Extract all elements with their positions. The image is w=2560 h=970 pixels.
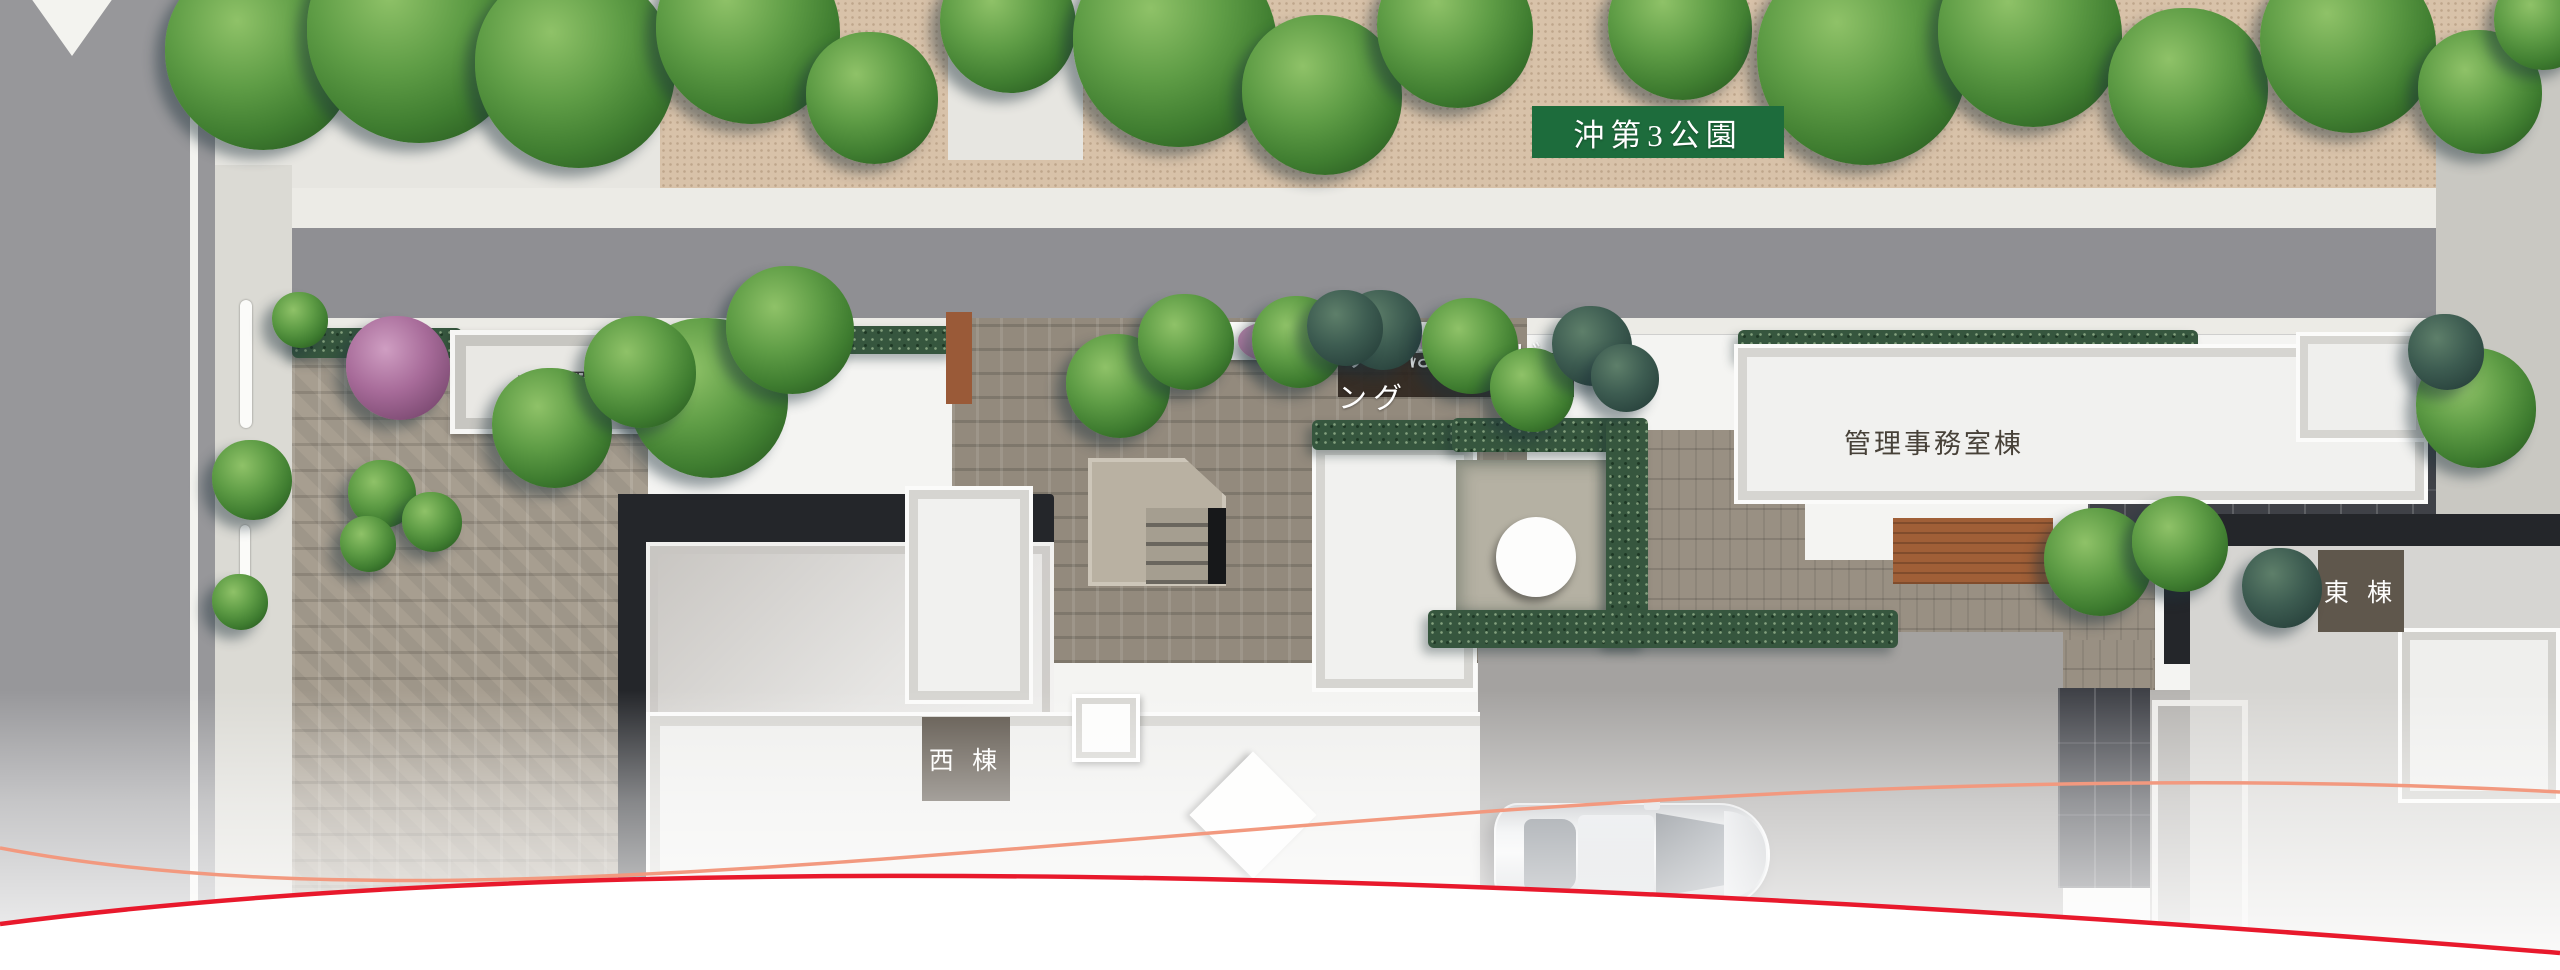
accent-curves — [0, 0, 2560, 970]
salmon-curve — [0, 783, 2560, 881]
site-plan-canvas: ゴミ置き場 管理事務室棟 西 棟 東 棟 みちばたリビング 沖第3公園 — [0, 0, 2560, 970]
